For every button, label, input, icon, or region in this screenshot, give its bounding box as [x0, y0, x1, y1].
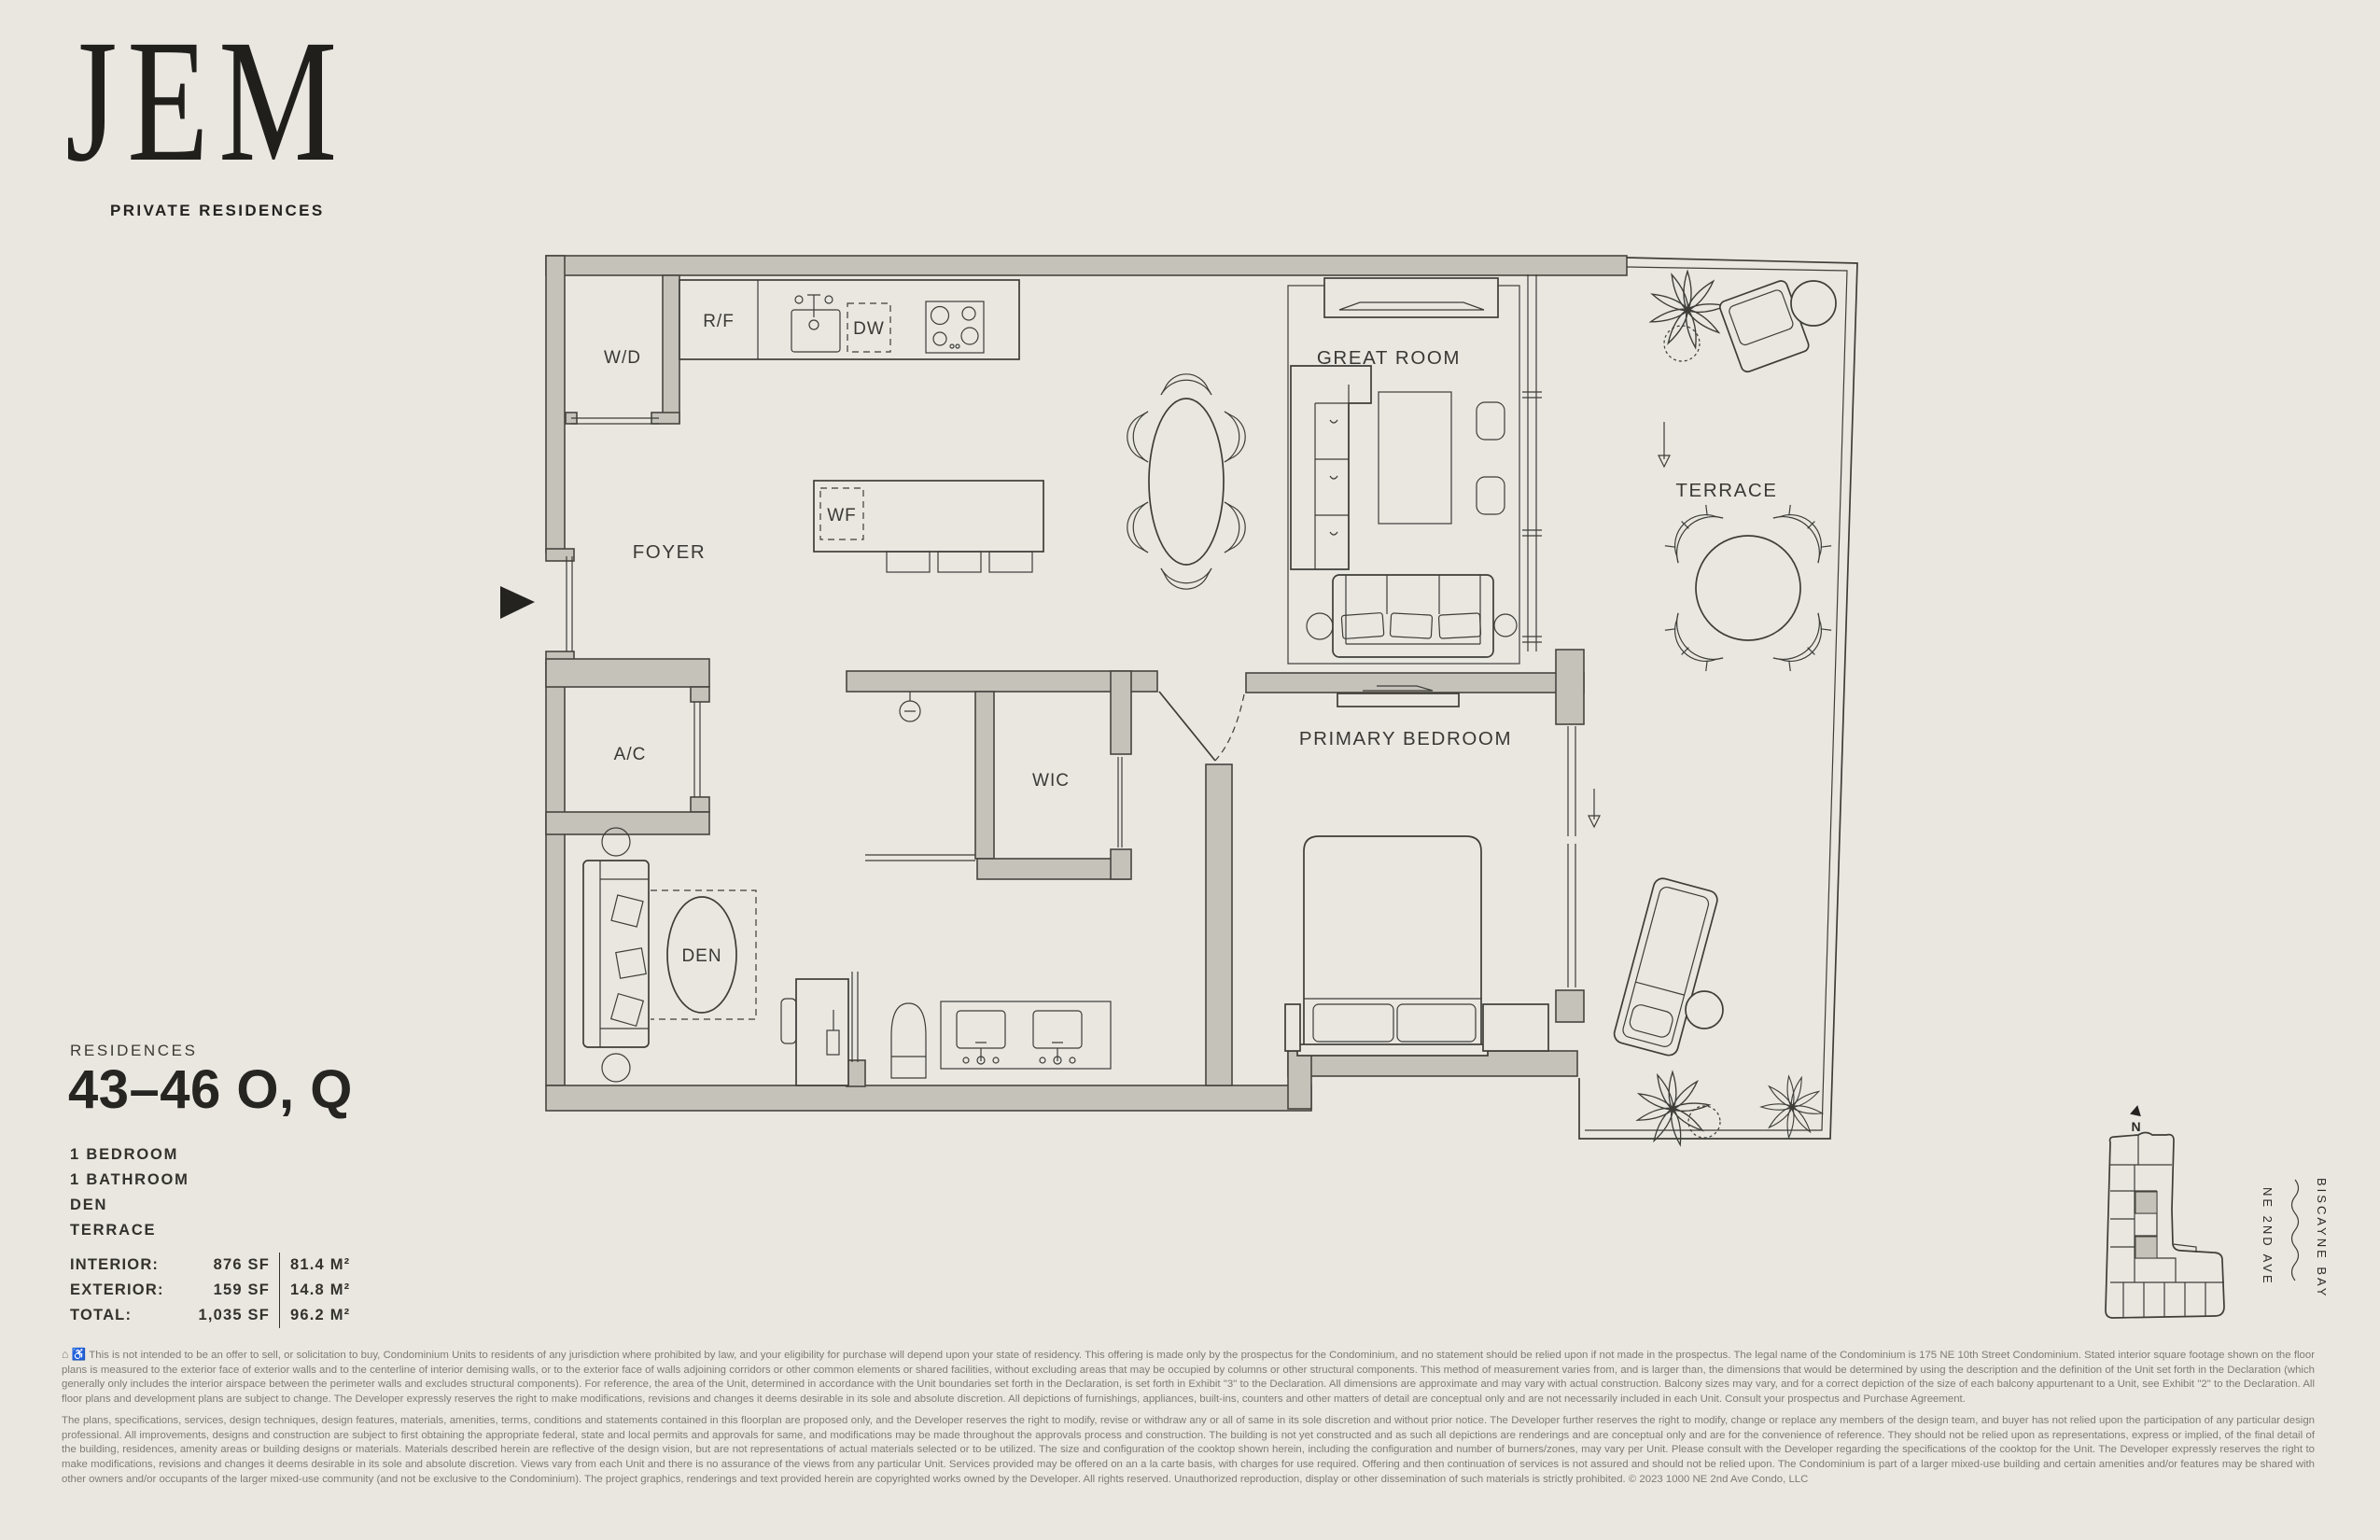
area-sf-value: 1,035 SF: [180, 1303, 270, 1328]
room-label-rf: R/F: [703, 312, 735, 331]
kitchen-island: [814, 481, 1043, 572]
room-label-den: DEN: [681, 946, 721, 966]
area-m2-value: 96.2 M²: [279, 1303, 350, 1328]
plant-icon: [1754, 1068, 1831, 1145]
sectional-sofa: [1291, 366, 1371, 569]
terrace-round-table: [1686, 991, 1723, 1029]
room-label-primary-bedroom: PRIMARY BEDROOM: [1299, 728, 1512, 749]
vanity: [941, 1001, 1111, 1069]
residence-areas: INTERIOR: 876 SF 81.4 M² EXTERIOR: 159 S…: [70, 1253, 350, 1328]
bathroom-area: [891, 692, 1111, 1078]
floorplan-brochure-page: { "page": { "background": "#eae7e1", "wa…: [0, 0, 2380, 1540]
keyplan: N NE 2ND AVE BISCAYNE BAY: [2086, 1099, 2375, 1333]
area-label: EXTERIOR:: [70, 1278, 180, 1303]
area-row: INTERIOR: 876 SF 81.4 M²: [70, 1253, 350, 1278]
north-arrow-icon: [2130, 1104, 2143, 1116]
area-m2-value: 14.8 M²: [279, 1278, 350, 1303]
floorplan-drawing: W/D R/F DW WF FOYER GREAT ROOM TERRACE A…: [485, 252, 1867, 1171]
room-label-ac: A/C: [614, 745, 647, 764]
disclaimer: ⌂♿This is not intended to be an offer to…: [62, 1348, 2315, 1493]
coffee-table: [1379, 392, 1451, 524]
plant-icon: [1636, 1071, 1710, 1145]
disclaimer-text-2: The plans, specifications, services, des…: [62, 1415, 2315, 1485]
shower: [900, 692, 920, 721]
plant-icon: [1649, 272, 1726, 349]
area-row: TOTAL: 1,035 SF 96.2 M²: [70, 1303, 350, 1328]
area-label: TOTAL:: [70, 1303, 180, 1328]
side-table: [602, 1054, 630, 1082]
area-m2-value: 81.4 M²: [279, 1253, 350, 1278]
brand-tagline: PRIVATE RESIDENCES: [110, 202, 325, 220]
room-label-terrace: TERRACE: [1675, 480, 1777, 501]
room-label-foyer: FOYER: [633, 541, 707, 563]
feature-item: 1 BEDROOM: [70, 1142, 189, 1168]
terrace-side-table: [1791, 281, 1836, 326]
nightstand: [1285, 1004, 1300, 1051]
ottoman: [1477, 402, 1505, 440]
disclaimer-paragraph-2: The plans, specifications, services, des…: [62, 1414, 2315, 1488]
disclaimer-text-1: This is not intended to be an offer to s…: [62, 1350, 2315, 1405]
ottoman: [1477, 477, 1505, 514]
feature-item: TERRACE: [70, 1218, 189, 1243]
accessibility-icon: ♿: [72, 1348, 87, 1361]
street-label: NE 2ND AVE: [2261, 1187, 2275, 1286]
desk: [781, 979, 848, 1085]
room-label-wd: W/D: [604, 348, 641, 368]
bed: [1297, 836, 1488, 1056]
compass-label: N: [2131, 1119, 2141, 1134]
room-label-wic: WIC: [1032, 771, 1070, 791]
nightstand: [1483, 1004, 1548, 1051]
side-table: [1494, 614, 1517, 637]
brand-logo: JEM: [65, 13, 347, 189]
water-label: BISCAYNE BAY: [2315, 1178, 2329, 1298]
side-table: [1307, 613, 1333, 639]
disclaimer-paragraph-1: ⌂♿This is not intended to be an offer to…: [62, 1348, 2315, 1407]
area-row: EXTERIOR: 159 SF 14.8 M²: [70, 1278, 350, 1303]
compass: N: [2130, 1104, 2143, 1134]
area-sf-value: 876 SF: [180, 1253, 270, 1278]
water-wave-icon: [2292, 1180, 2299, 1281]
room-label-great-room: GREAT ROOM: [1317, 347, 1461, 369]
terrace-dining-set: [1659, 499, 1838, 678]
den-sofa: [583, 861, 649, 1047]
area-label: INTERIOR:: [70, 1253, 180, 1278]
feature-item: 1 BATHROOM: [70, 1168, 189, 1193]
toilet: [891, 1003, 926, 1078]
terrace-sun-lounger: [1612, 876, 1719, 1057]
equal-housing-icon: ⌂: [62, 1348, 69, 1361]
residence-number: 43–46 O, Q: [68, 1058, 353, 1121]
feature-item: DEN: [70, 1193, 189, 1218]
exit-arrow-icon: [1589, 422, 1670, 827]
entry-arrow-icon: [500, 586, 535, 619]
room-label-wf: WF: [827, 506, 857, 525]
great-room-area: [1288, 278, 1519, 664]
terrace-area: [1579, 258, 1857, 1146]
building-footprint: [2106, 1133, 2224, 1319]
sofa: [1333, 575, 1493, 657]
room-label-dw: DW: [853, 319, 885, 339]
residence-features: 1 BEDROOM 1 BATHROOM DEN TERRACE: [70, 1142, 189, 1243]
residences-label: RESIDENCES: [70, 1042, 198, 1060]
area-sf-value: 159 SF: [180, 1278, 270, 1303]
tv-console: [1324, 278, 1498, 317]
dining-area: [1127, 374, 1245, 589]
